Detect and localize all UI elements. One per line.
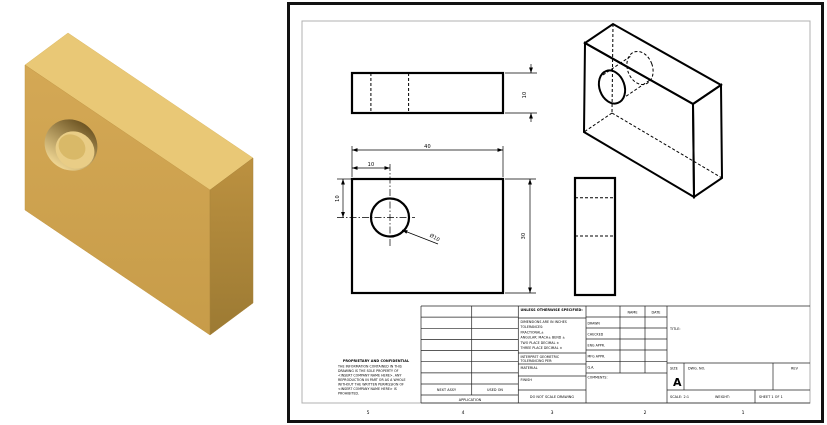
proprietary-title: PROPRIETARY AND CONFIDENTIAL	[343, 359, 410, 363]
do-not-scale-label: DO NOT SCALE DRAWING	[530, 395, 574, 399]
mfg-appr-label: MFG APPR.	[588, 355, 606, 359]
application-label: APPLICATION	[459, 398, 482, 402]
material-label: MATERIAL	[521, 366, 538, 370]
interpret-label: TOLERANCING PER:	[520, 359, 553, 363]
model-viewport[interactable]	[0, 0, 285, 425]
date-header: DATE	[651, 311, 660, 315]
model-3d[interactable]	[0, 0, 285, 425]
tolerance-line: TWO PLACE DECIMAL ±	[520, 341, 560, 345]
size-value: A	[673, 376, 682, 389]
qa-label: Q.A.	[588, 366, 595, 370]
finish-label: FINISH	[521, 378, 533, 382]
dimension-hole-x-text[interactable]: 10	[368, 162, 375, 168]
drawing-sheet: 5 4 3 2 1 10	[287, 2, 824, 423]
dimension-hole-y-text[interactable]: 10	[335, 195, 341, 202]
tolerance-line: TOLERANCES:	[520, 325, 544, 329]
proprietary-line: WITHOUT THE WRITTEN PERMISSION OF	[338, 383, 404, 387]
proprietary-line: DRAWING IS THE SOLE PROPERTY OF	[338, 369, 399, 373]
dimension-depth-text[interactable]: 10	[522, 92, 528, 99]
eng-appr-label: ENG APPR.	[588, 344, 605, 348]
sheet-text: SHEET 1 OF 1	[759, 395, 783, 399]
dimension-width-text[interactable]: 40	[424, 144, 431, 150]
zone-label: 2	[644, 410, 647, 416]
unless-otherwise-label: UNLESS OTHERWISE SPECIFIED:	[521, 308, 583, 312]
weight-text: WEIGHT:	[715, 395, 730, 399]
scale-text: SCALE: 2:1	[670, 395, 689, 399]
proprietary-line: THE INFORMATION CONTAINED IN THIS	[337, 365, 402, 369]
tolerance-line: ANGULAR: MACH± BEND ±	[521, 336, 566, 340]
checked-label: CHECKED	[588, 333, 604, 337]
next-assy-label: NEXT ASSY	[437, 388, 457, 392]
proprietary-line: <INSERT COMPANY NAME HERE>. ANY	[338, 374, 401, 378]
tolerance-line: THREE PLACE DECIMAL ±	[520, 346, 563, 350]
tolerance-line: DIMENSIONS ARE IN INCHES	[521, 320, 567, 324]
zone-label: 5	[367, 410, 370, 416]
used-on-label: USED ON	[487, 388, 503, 392]
dimension-height-text[interactable]: 30	[521, 233, 527, 240]
proprietary-line: PROHIBITED.	[338, 392, 359, 396]
proprietary-line: <INSERT COMPANY NAME HERE> IS	[338, 387, 397, 391]
dwg-no-label: DWG. NO.	[688, 367, 705, 371]
proprietary-line: REPRODUCTION IN PART OR AS A WHOLE	[338, 378, 406, 382]
tolerance-line: FRACTIONAL±	[521, 330, 545, 334]
zone-label: 4	[462, 410, 465, 416]
rev-label: REV	[791, 367, 799, 371]
zone-label: 1	[742, 410, 745, 416]
size-label: SIZE	[670, 367, 678, 371]
name-header: NAME	[627, 311, 637, 315]
title-label: TITLE:	[669, 327, 681, 331]
cad-screenshot: 5 4 3 2 1 10	[0, 0, 827, 425]
drawn-label: DRAWN	[588, 322, 601, 326]
zone-label: 3	[551, 410, 554, 416]
comments-label: COMMENTS:	[588, 376, 608, 380]
